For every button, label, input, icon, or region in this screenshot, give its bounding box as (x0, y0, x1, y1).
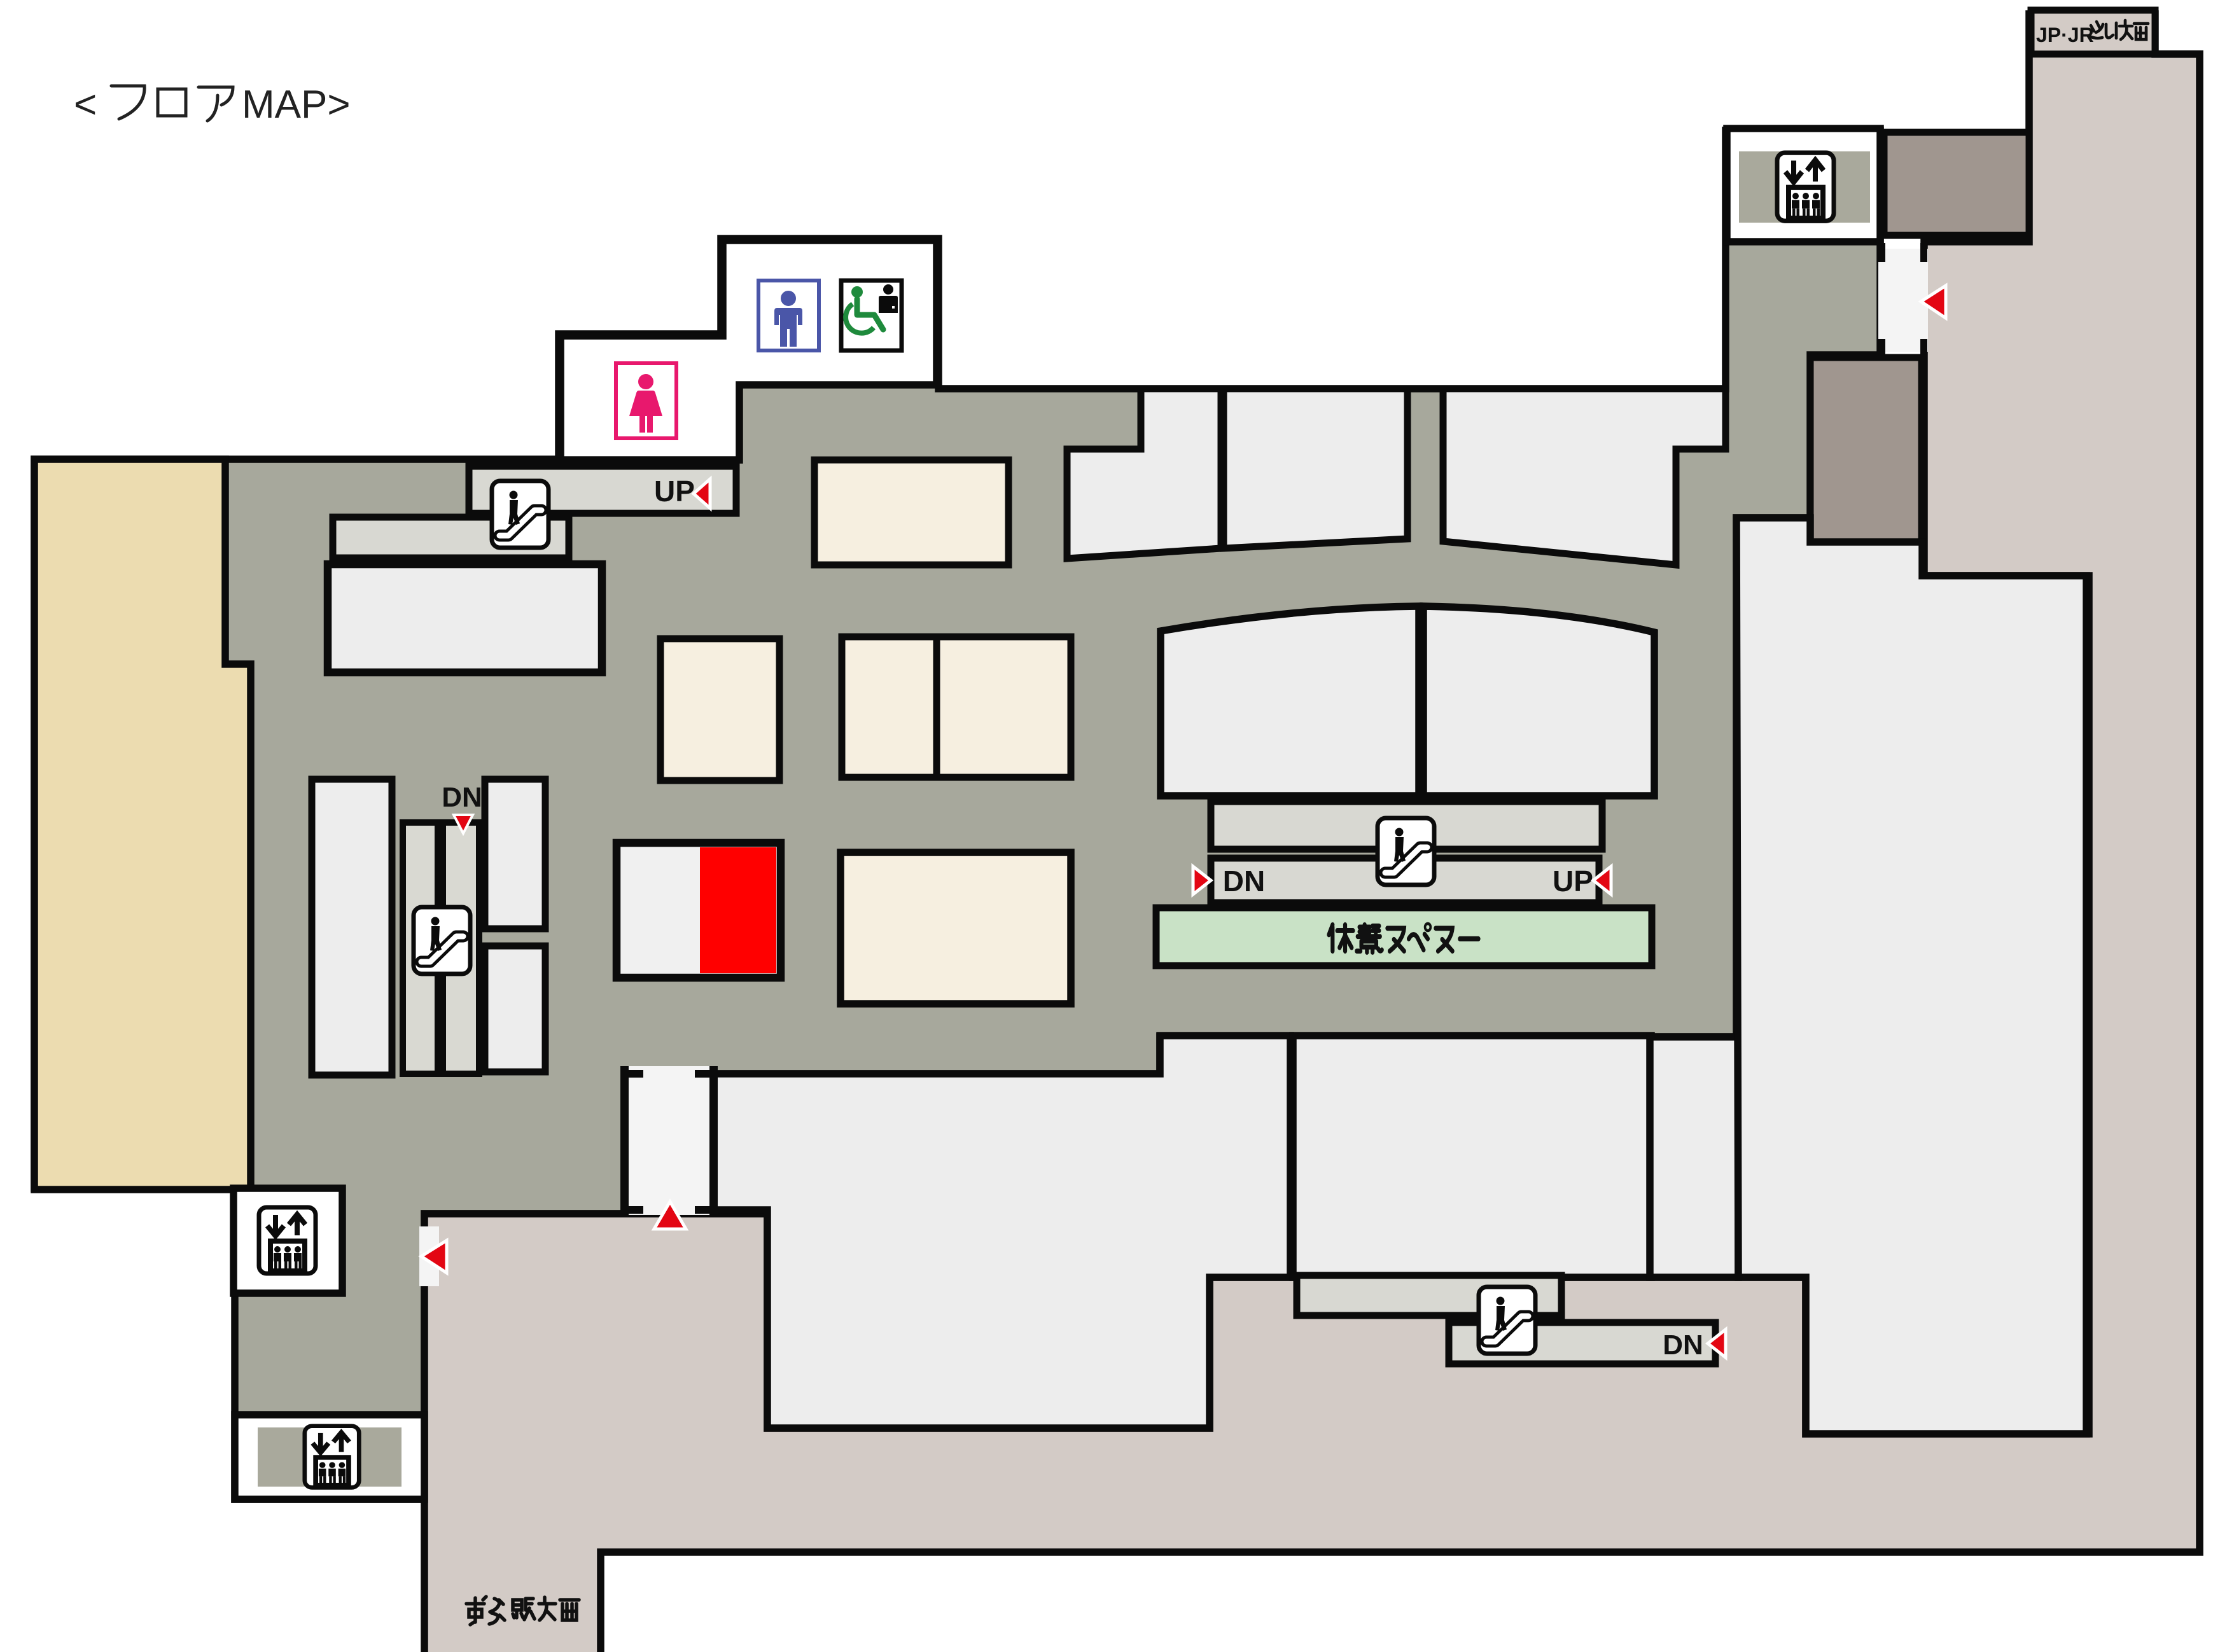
svg-text:UP: UP (654, 475, 695, 508)
svg-text:DN: DN (1223, 864, 1265, 898)
svg-text:UP: UP (1553, 864, 1593, 898)
svg-text:DN: DN (1663, 1329, 1703, 1361)
svg-text:<: < (74, 83, 97, 127)
svg-text:MAP>: MAP> (242, 83, 351, 127)
svg-text:DN: DN (442, 782, 482, 813)
svg-text:JP·JR: JP·JR (2036, 24, 2094, 46)
